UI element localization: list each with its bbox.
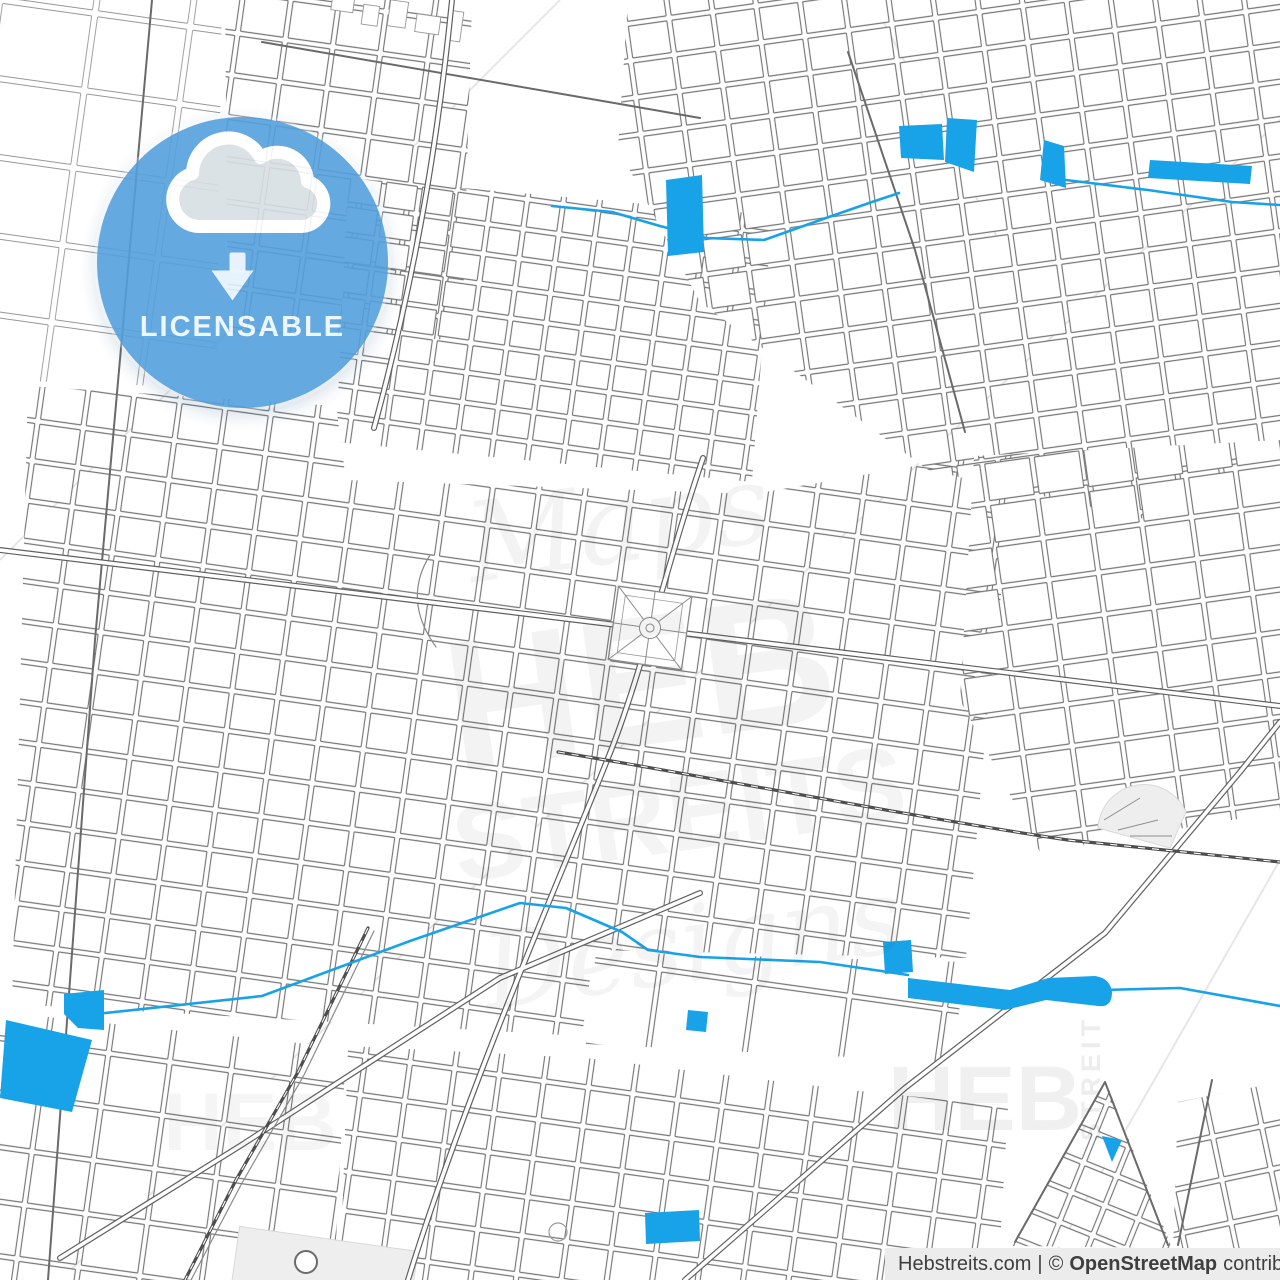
watermark-heb-br: HEB: [888, 1048, 1082, 1150]
pond: [1040, 140, 1066, 188]
map-preview: Maps HEB STREITS Designs HEB STREIT HEB …: [0, 0, 1280, 1280]
cloud-icon: [173, 138, 324, 227]
attribution-bar: Hebstreits.com | © OpenStreetMap contrib…: [885, 1248, 1280, 1280]
download-arrow-icon: [212, 253, 254, 301]
pond: [899, 124, 944, 160]
watermark-heb-bl: HEB: [163, 1077, 336, 1168]
attribution-copyright: ©: [1049, 1253, 1064, 1276]
pond: [666, 175, 704, 256]
attribution-suffix: contributors: [1223, 1253, 1280, 1276]
pond: [645, 1210, 700, 1244]
badge-label: LICENSABLE: [97, 311, 388, 344]
attribution-separator: |: [1037, 1253, 1042, 1276]
attribution-source: OpenStreetMap: [1069, 1253, 1217, 1276]
attribution-site: Hebstreits.com: [898, 1253, 1031, 1276]
cloud-download-icon: [97, 117, 388, 408]
roundabout: [295, 1251, 317, 1273]
licensable-badge: LICENSABLE: [97, 117, 388, 408]
pond: [686, 1010, 708, 1032]
watermark-streit-vertical: STREIT: [1076, 1015, 1106, 1141]
